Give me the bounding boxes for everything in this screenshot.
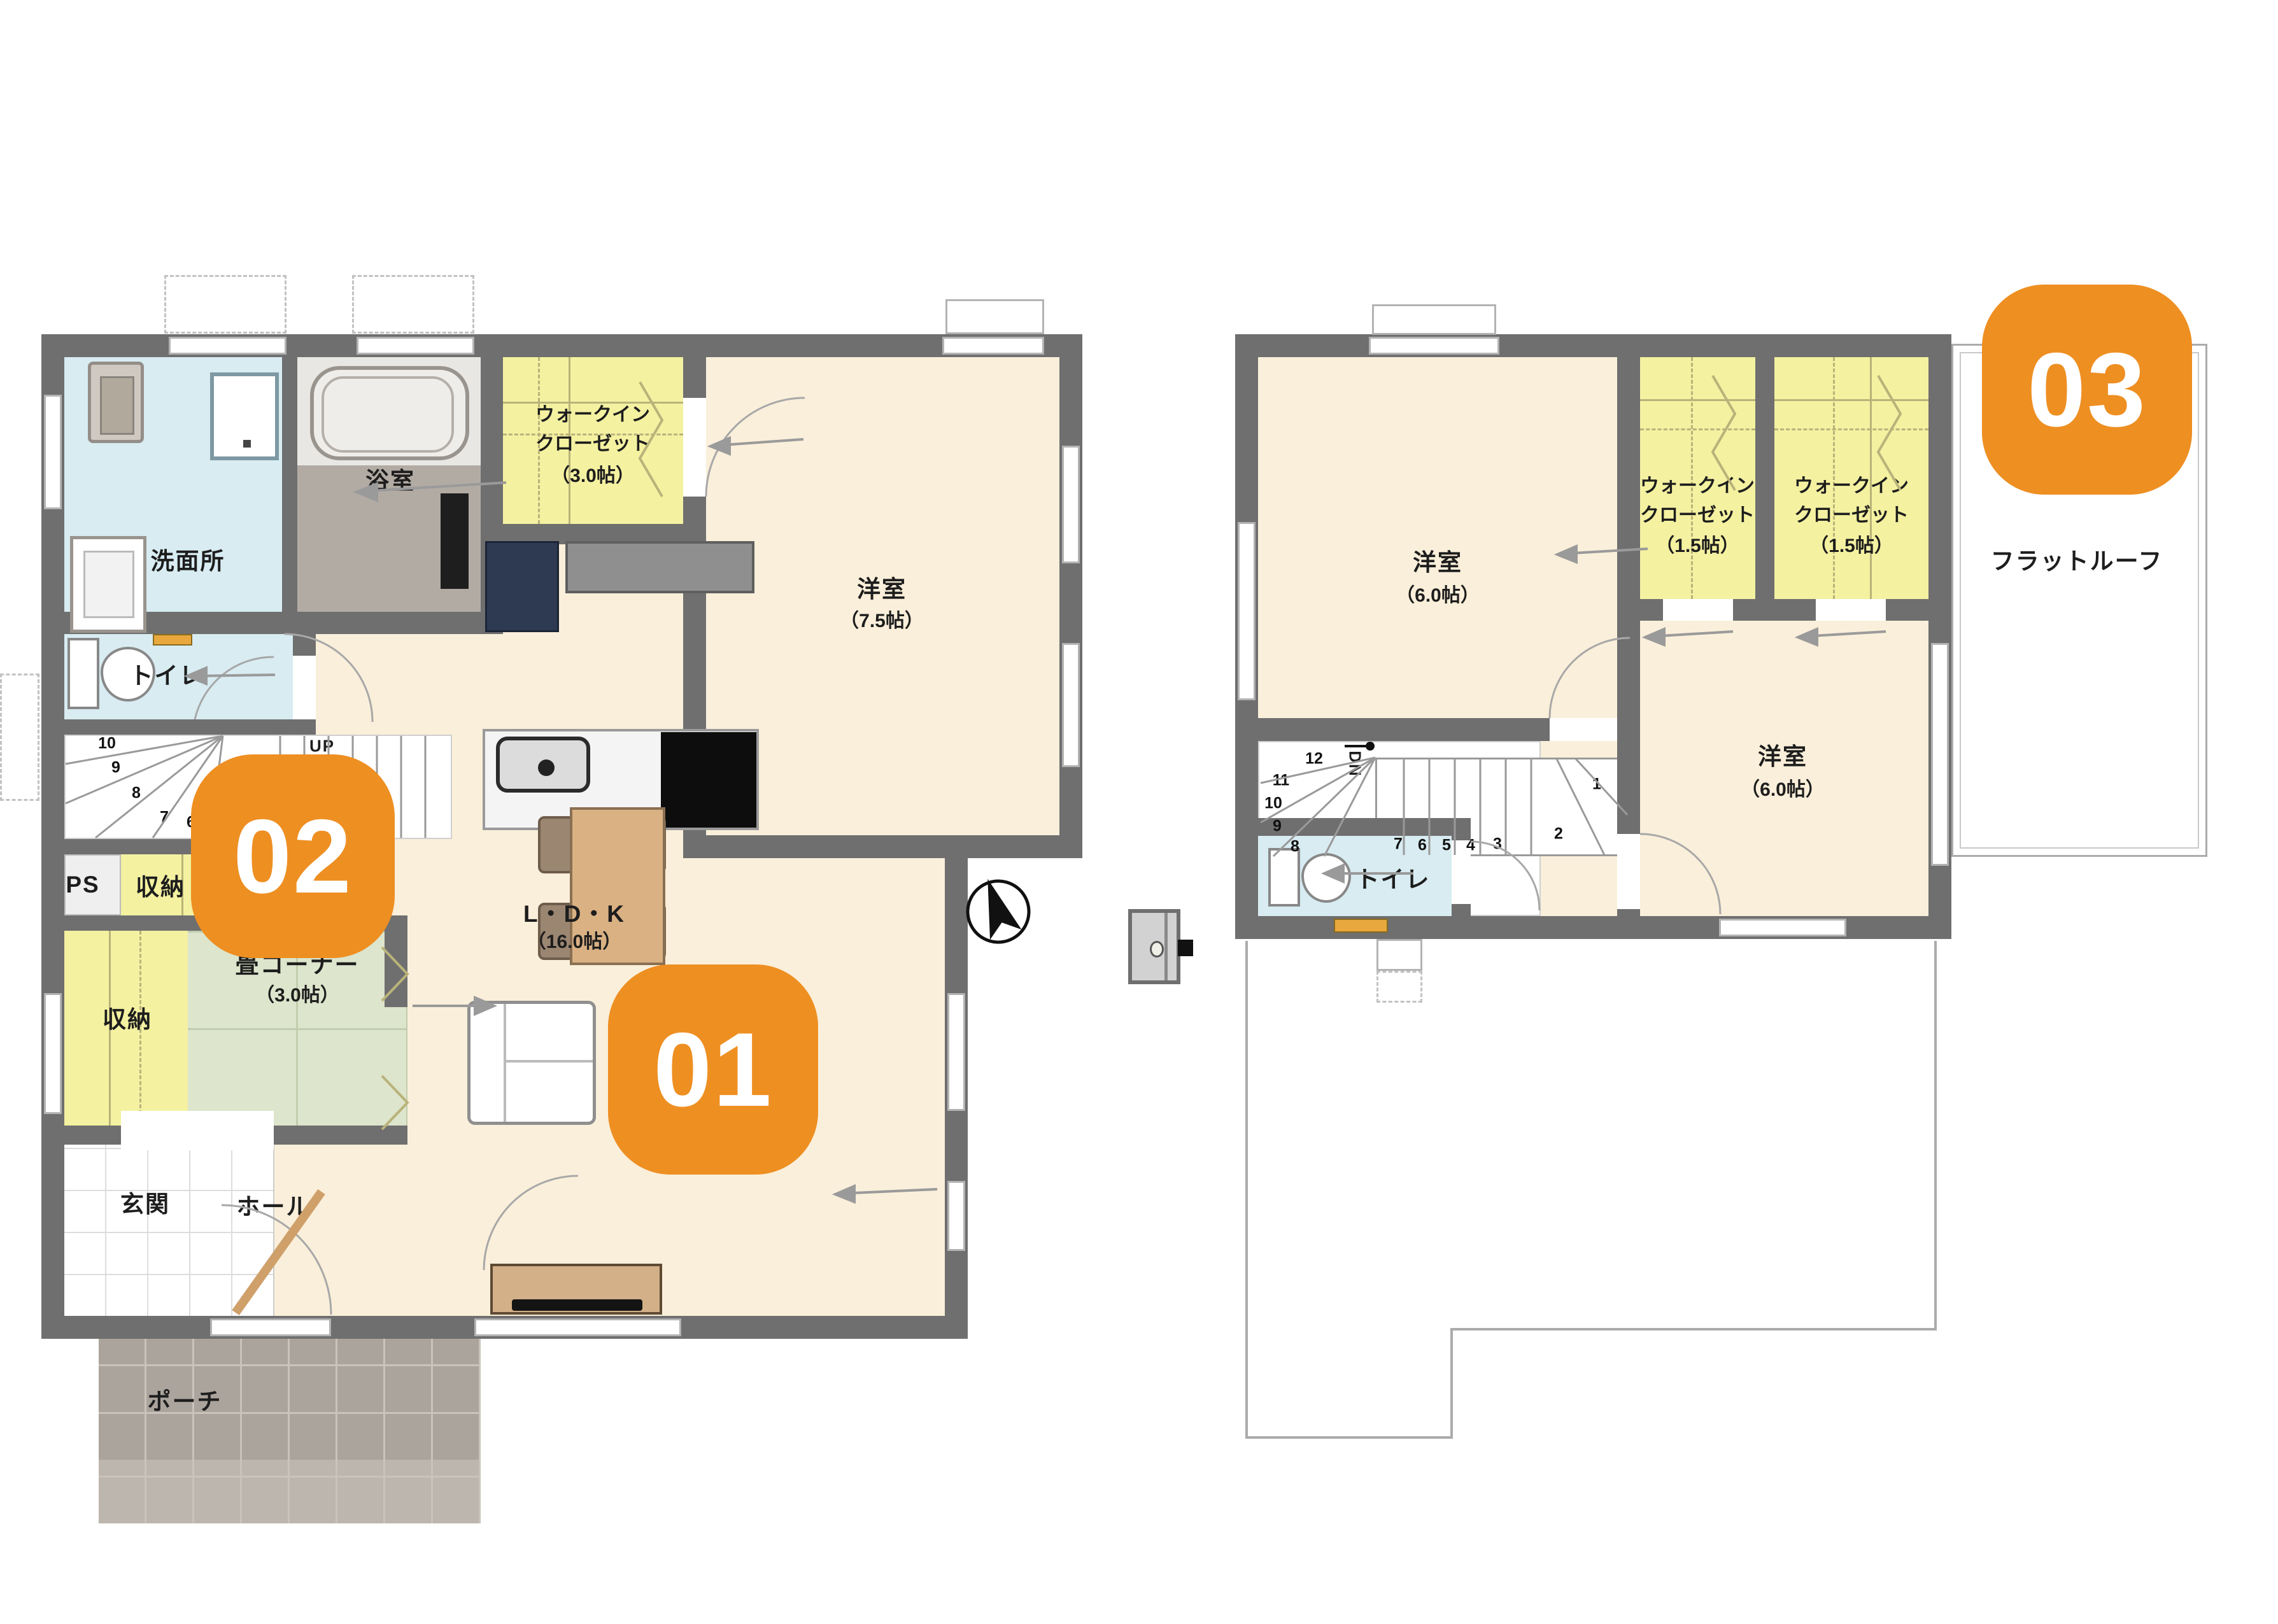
room-label-porch: ポーチ bbox=[148, 1382, 222, 1416]
f1-window-bath-top bbox=[357, 337, 474, 355]
f2-door-gap-wic2 bbox=[1816, 599, 1886, 621]
toilet-tank-2f bbox=[1268, 848, 1300, 907]
stairs-up-label: UP bbox=[309, 737, 335, 756]
room-label-wic-line2: クローゼット bbox=[535, 428, 650, 456]
f1-window-box-bedroom bbox=[945, 299, 1044, 334]
f1-vent-box-right bbox=[352, 275, 474, 334]
room-label-wic2-size: （1.5帖） bbox=[1809, 530, 1893, 558]
f1-toilet-sill bbox=[153, 634, 192, 646]
f1-wall-wash-bath bbox=[282, 357, 297, 612]
badge-02: 02 bbox=[191, 754, 395, 958]
room-label-bedroomA-size: （6.0帖） bbox=[1396, 579, 1480, 607]
f2-toilet-window-box bbox=[1376, 939, 1422, 971]
stair-num: 3 bbox=[1493, 835, 1502, 854]
stair-num: 12 bbox=[1305, 750, 1323, 768]
room-label-wic-line1: ウォークイン bbox=[535, 399, 650, 427]
room-label-wic-size: （3.0帖） bbox=[551, 460, 635, 488]
f1-wall-step bbox=[683, 835, 1082, 858]
room-label-flat-roof: フラットルーフ bbox=[1991, 542, 2163, 576]
room-label-bedroomB: 洋室 bbox=[1758, 737, 1808, 772]
f1-window-storage-left bbox=[44, 993, 62, 1114]
f2-door-gap-wic1 bbox=[1663, 599, 1733, 621]
f2-wall-toilet-top bbox=[1258, 818, 1452, 836]
toilet-tank-1f bbox=[67, 638, 99, 709]
room-label-ps: PS bbox=[66, 872, 99, 898]
kitchen-sink bbox=[496, 737, 590, 793]
room-label-wic2-line2: クローゼット bbox=[1794, 499, 1909, 527]
room-label-wic1-line2: クローゼット bbox=[1640, 499, 1755, 527]
stair-num: 9 bbox=[111, 759, 120, 777]
f1-window-ldk-right1 bbox=[947, 993, 965, 1111]
f1-vent-box-west bbox=[0, 674, 39, 801]
f2-window-bedroomB-right bbox=[1931, 643, 1949, 866]
room-label-ldk: L・D・K bbox=[523, 894, 625, 929]
stair-num: 10 bbox=[1264, 794, 1282, 813]
f2-window-top bbox=[1369, 337, 1499, 355]
f1-door-gap-toilet bbox=[293, 656, 316, 719]
stair-num: 10 bbox=[98, 735, 116, 753]
room-label-hall: ホール bbox=[237, 1187, 311, 1222]
badge-03: 03 bbox=[1982, 285, 2192, 495]
stair-num: 5 bbox=[1442, 837, 1451, 855]
f1-window-washroom-left bbox=[44, 395, 62, 509]
badge-02-number: 02 bbox=[233, 796, 353, 917]
room-label-wic2-line1: ウォークイン bbox=[1794, 470, 1909, 498]
f2-toilet-vent-box bbox=[1376, 971, 1422, 1003]
f1-window-bedroom-right1 bbox=[1062, 446, 1080, 563]
stair-num: 8 bbox=[1291, 838, 1299, 856]
f1-wall-right-upper bbox=[1059, 334, 1082, 858]
f2-reference-outline bbox=[1247, 941, 1935, 1437]
f2-wall-top bbox=[1235, 334, 1951, 357]
f2-wall-wic-divider bbox=[1755, 357, 1774, 599]
room-label-bath: 浴室 bbox=[365, 462, 415, 496]
f1-window-ldk-right2 bbox=[947, 1181, 965, 1251]
f1-window-bedroom-right2 bbox=[1062, 643, 1080, 767]
stair-num: 7 bbox=[1394, 835, 1403, 854]
stair-num: 11 bbox=[1273, 772, 1289, 790]
stair-num: 4 bbox=[1466, 837, 1475, 855]
room-label-washroom: 洗面所 bbox=[151, 542, 225, 576]
f1-window-ldk-bottom bbox=[474, 1318, 681, 1336]
vanity-sink-lower bbox=[70, 536, 146, 633]
f1-wall-tatami-right bbox=[385, 931, 407, 1007]
room-label-bedroomB-size: （6.0帖） bbox=[1741, 773, 1825, 801]
room-label-toilet-2f: トイレ bbox=[1356, 860, 1431, 894]
door-icon bbox=[1128, 909, 1180, 984]
room-label-bedroomA: 洋室 bbox=[1413, 543, 1462, 577]
tv-board bbox=[490, 1264, 662, 1315]
stair-num: 8 bbox=[132, 784, 141, 803]
badge-01: 01 bbox=[608, 964, 818, 1175]
f2-window-bedroomB-bottom bbox=[1719, 919, 1846, 936]
room-label-wic1-size: （1.5帖） bbox=[1655, 530, 1739, 558]
f1-entrance-floor bbox=[64, 1145, 274, 1316]
room-label-storage-a: 収納 bbox=[136, 868, 185, 902]
f1-entrance-door-opening bbox=[210, 1318, 331, 1336]
bath-shower-unit bbox=[441, 493, 469, 589]
stair-num: 2 bbox=[1554, 825, 1563, 844]
room-label-wic1-line1: ウォークイン bbox=[1640, 470, 1755, 498]
stair-num: 6 bbox=[1418, 837, 1427, 855]
kitchen-back-counter bbox=[565, 541, 754, 593]
f2-window-left bbox=[1238, 522, 1256, 700]
f2-wall-center bbox=[1617, 357, 1640, 916]
f2-toilet-sill bbox=[1334, 919, 1388, 933]
f1-wall-toilet-bottom bbox=[64, 719, 316, 735]
kitchen-cooktop bbox=[661, 732, 756, 828]
stair-num: 9 bbox=[1273, 817, 1282, 836]
f1-window-washroom-top bbox=[169, 337, 287, 355]
badge-01-number: 01 bbox=[653, 1010, 773, 1130]
room-label-ldk-size: （16.0帖） bbox=[527, 926, 621, 954]
f1-door-gap-bedroom bbox=[683, 398, 706, 497]
room-label-storage-b: 収納 bbox=[103, 1000, 152, 1034]
f2-door-gap-bedroomB bbox=[1617, 834, 1640, 909]
room-label-tatami-size: （3.0帖） bbox=[255, 979, 339, 1007]
sofa bbox=[467, 1001, 596, 1125]
stair-num: 1 bbox=[1592, 775, 1601, 794]
room-label-bedroom75-size: （7.5帖） bbox=[840, 605, 924, 633]
room-label-toilet-1f: トイレ bbox=[130, 656, 204, 691]
f1-vent-box-left bbox=[164, 275, 287, 334]
refrigerator bbox=[485, 541, 559, 632]
f2-window-box-top bbox=[1372, 304, 1496, 335]
f1-porch-step bbox=[99, 1460, 481, 1523]
north-arrow-icon bbox=[959, 870, 1037, 950]
f1-entrance-step bbox=[121, 1111, 274, 1150]
stair-num: 7 bbox=[160, 808, 169, 827]
washing-machine bbox=[88, 362, 144, 443]
stairs-dn-label: DN bbox=[1345, 751, 1365, 777]
badge-03-number: 03 bbox=[2027, 330, 2147, 450]
bathtub bbox=[310, 366, 469, 460]
f1-window-bedroom-top bbox=[942, 337, 1044, 355]
floor-plan-canvas: 洗面所 浴室 ウォークイン クローゼット （3.0帖） 洋室 （7.5帖） トイ… bbox=[0, 0, 2278, 1624]
room-label-entrance: 玄関 bbox=[120, 1185, 170, 1219]
vanity-sink-upper bbox=[210, 372, 279, 460]
room-label-bedroom75: 洋室 bbox=[857, 570, 907, 604]
